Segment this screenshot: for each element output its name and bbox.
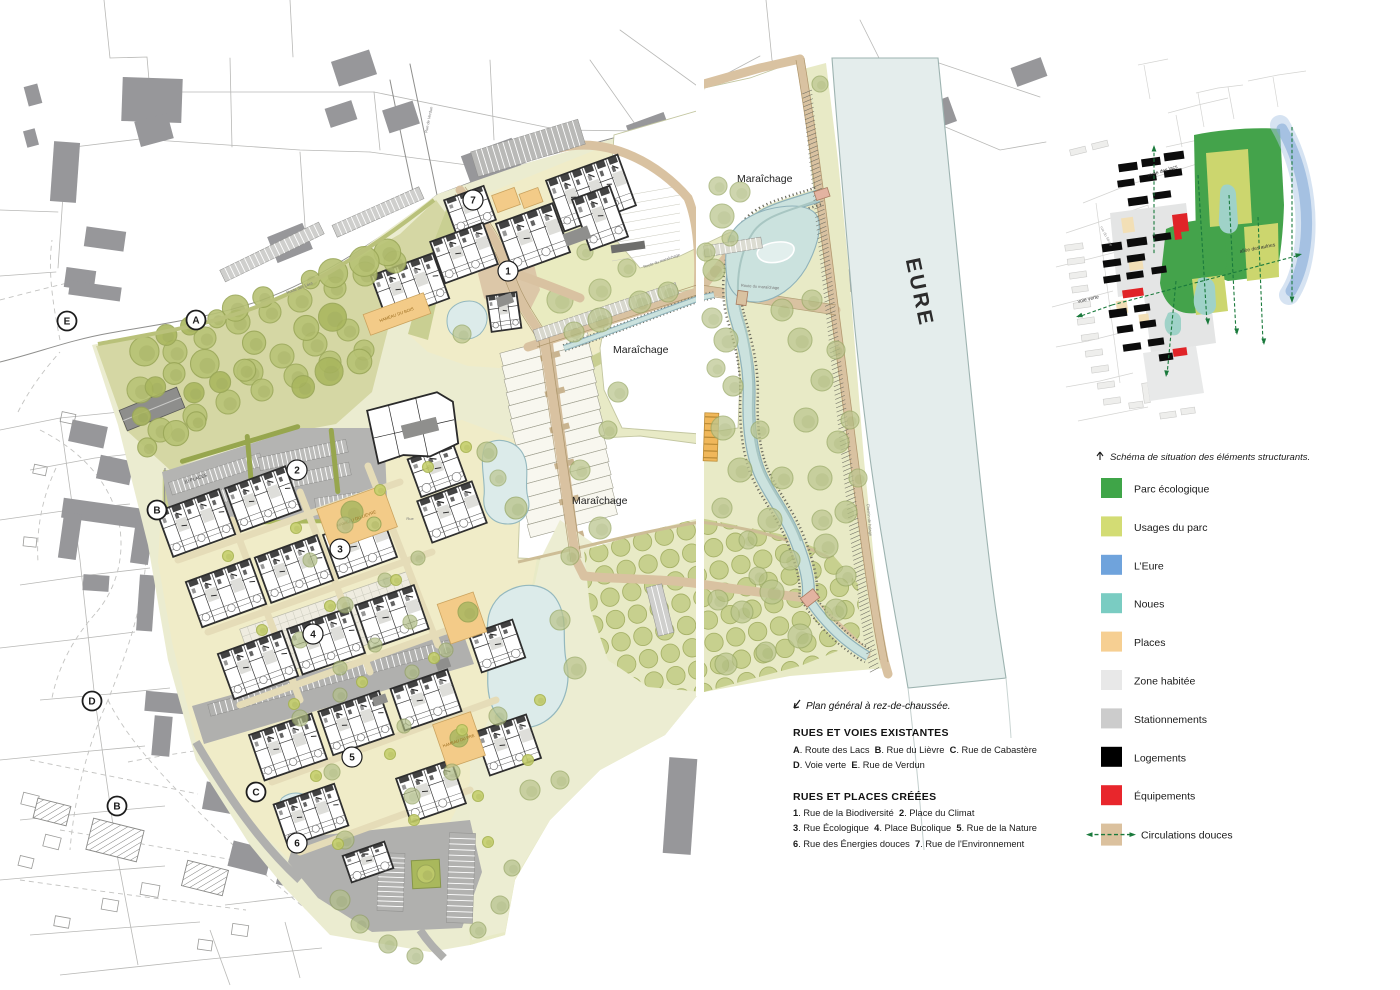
svg-text:Rue: Rue: [406, 516, 414, 521]
svg-text:Logements: Logements: [1134, 752, 1186, 764]
svg-text:D. Voie verte E. Rue de Verdu: D. Voie verte E. Rue de Verdun: [793, 760, 925, 770]
svg-text:Circulations douces: Circulations douces: [1141, 830, 1233, 842]
svg-text:Parc écologique: Parc écologique: [1134, 484, 1209, 496]
svg-text:E: E: [64, 317, 71, 328]
svg-text:A. Route des Lacs B. Rue du L: A. Route des Lacs B. Rue du Lièvre C. Ru…: [793, 745, 1037, 755]
svg-text:RUES ET PLACES CRÉÉES: RUES ET PLACES CRÉÉES: [793, 790, 936, 803]
svg-text:Plan général à rez-de-chaussée: Plan général à rez-de-chaussée.: [806, 701, 951, 712]
svg-text:5: 5: [349, 753, 355, 764]
svg-text:Maraîchage: Maraîchage: [572, 495, 628, 507]
svg-text:1: 1: [505, 267, 511, 278]
svg-text:Maraîchage: Maraîchage: [737, 173, 793, 185]
svg-text:D: D: [88, 697, 95, 708]
svg-text:Stationnements: Stationnements: [1134, 714, 1207, 726]
svg-text:Équipements: Équipements: [1134, 790, 1195, 803]
svg-text:A: A: [192, 316, 199, 327]
svg-text:Places: Places: [1134, 637, 1166, 649]
svg-text:Schéma de situation des élémen: Schéma de situation des éléments structu…: [1110, 452, 1310, 463]
svg-text:RUES ET VOIES EXISTANTES: RUES ET VOIES EXISTANTES: [793, 727, 949, 739]
svg-text:4: 4: [310, 630, 316, 641]
svg-text:C: C: [252, 788, 259, 799]
svg-text:Maraîchage: Maraîchage: [613, 344, 669, 356]
svg-text:2: 2: [294, 466, 300, 477]
svg-text:7: 7: [470, 196, 476, 207]
svg-text:B: B: [153, 506, 160, 517]
svg-text:3: 3: [337, 545, 343, 556]
svg-text:Noues: Noues: [1134, 599, 1164, 611]
svg-text:3. Rue Écologique 4. Place Bu: 3. Rue Écologique 4. Place Bucolique 5. …: [793, 823, 1037, 833]
svg-text:Usages du parc: Usages du parc: [1134, 522, 1208, 534]
svg-text:B: B: [113, 802, 120, 813]
svg-text:6: 6: [294, 839, 300, 850]
svg-text:6. Rue des Énergies douces 7.: 6. Rue des Énergies douces 7. Rue de l'E…: [793, 839, 1025, 849]
svg-text:Zone habitée: Zone habitée: [1134, 676, 1195, 688]
svg-text:L’Eure: L’Eure: [1134, 560, 1164, 572]
svg-text:1. Rue de la Biodiversité 2.: 1. Rue de la Biodiversité 2. Place du Cl…: [793, 808, 975, 818]
